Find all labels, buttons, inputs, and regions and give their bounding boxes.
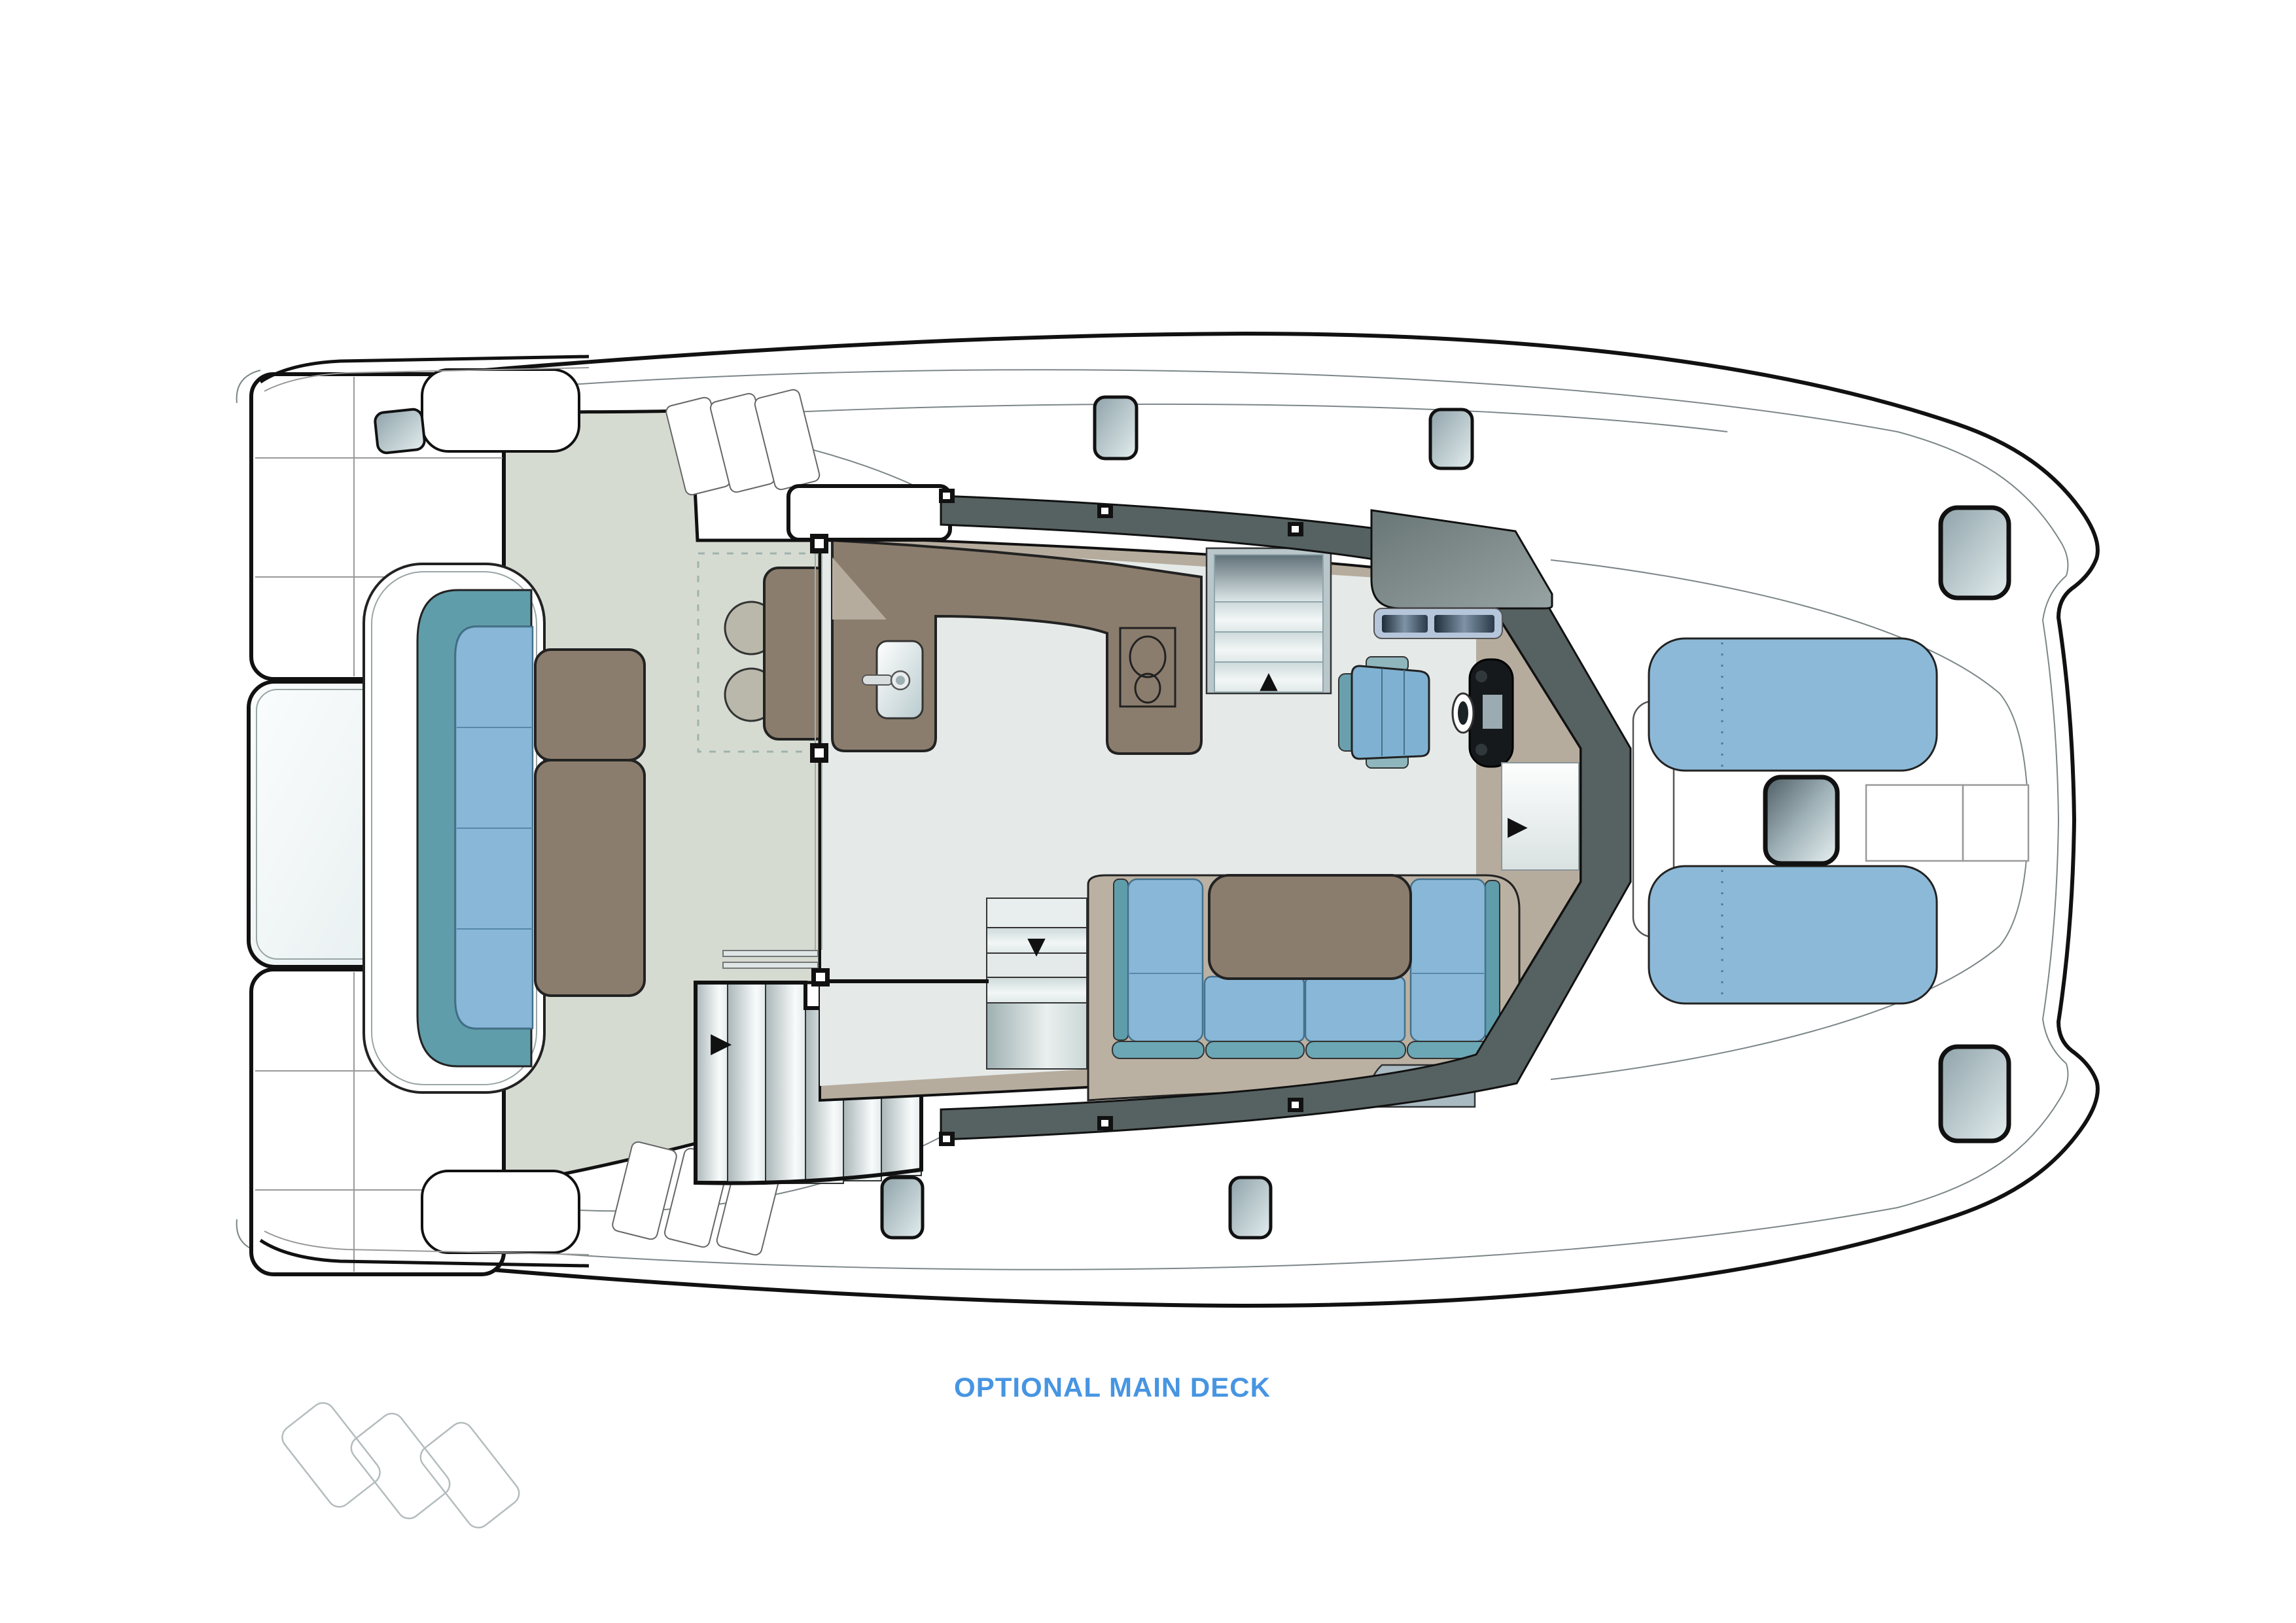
hull-window-reflection-lines xyxy=(277,1398,523,1532)
stairs-arrow-icon: ▶ xyxy=(711,1026,732,1058)
aft-cooler-cabinet: ▼ xyxy=(987,898,1087,1069)
walkway-hatch-bottom xyxy=(882,1178,923,1238)
foredeck-hatch-bottom xyxy=(1941,1047,2009,1141)
helm-screen xyxy=(1382,615,1428,633)
helm-screen xyxy=(1434,615,1494,633)
cooler-down-arrow-icon: ▼ xyxy=(1027,933,1046,960)
helm-seat-cushion xyxy=(1352,666,1429,759)
side-steps-top xyxy=(665,389,821,497)
fridge-unit: ▲ xyxy=(1207,548,1331,694)
sunpad-top xyxy=(1649,638,1937,771)
helm-seat xyxy=(1339,657,1429,768)
sunpad-bottom xyxy=(1649,866,1937,1003)
cockpit-table xyxy=(535,650,645,996)
anchor-locker xyxy=(1866,785,2028,861)
walkway-hatch-bottom xyxy=(1230,1178,1271,1238)
fridge-up-arrow-icon: ▲ xyxy=(1260,667,1278,694)
deck-plan-page: ▶ * * * ▲ xyxy=(0,0,2296,1623)
sofa-teal-edge-left xyxy=(1114,879,1128,1040)
plan-title: OPTIONAL MAIN DECK xyxy=(954,1372,1271,1403)
helm-instrument-panel xyxy=(1374,608,1502,638)
dinette-table xyxy=(1209,875,1411,979)
deck-plan-svg: ▶ * * * ▲ xyxy=(0,0,2296,1623)
sofa-teal-edge-right xyxy=(1485,881,1500,1040)
sliding-door-rail xyxy=(723,951,818,956)
walkway-hatch-top xyxy=(1430,410,1472,468)
galley-cooktop xyxy=(1120,628,1175,707)
foredeck-center-hatch xyxy=(1765,777,1837,864)
stern-deck-hatch xyxy=(374,408,425,453)
aft-bench xyxy=(364,564,544,1092)
sliding-door-panel xyxy=(788,486,950,540)
entry-door-arrow-icon: ▶ xyxy=(1508,811,1528,841)
sliding-door-rail xyxy=(723,962,818,968)
foredeck-hatch-top xyxy=(1941,508,2009,598)
aft-bench-cushions xyxy=(455,627,533,1028)
walkway-hatch-top xyxy=(1095,397,1137,459)
